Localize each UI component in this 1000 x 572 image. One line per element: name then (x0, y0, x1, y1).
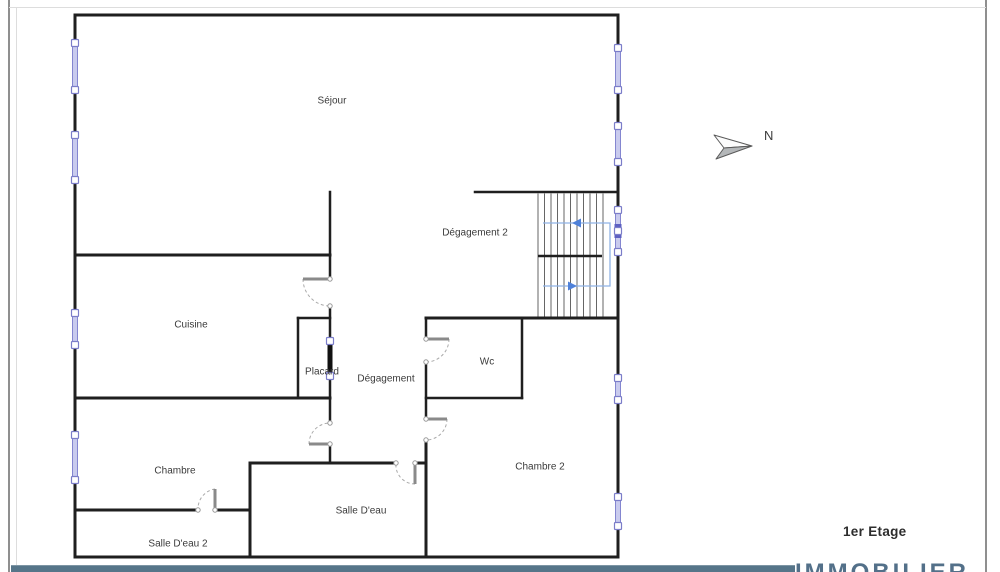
room-label-d-gagement: Dégagement (357, 374, 414, 385)
floor-title: 1er Etage (843, 524, 963, 539)
north-arrow-lower (716, 146, 752, 159)
stair-direction-path (543, 223, 610, 286)
door-hinge-dot (328, 442, 332, 446)
window-glass (73, 435, 78, 480)
door-swing-arc (309, 423, 330, 444)
room-label-wc: Wc (480, 357, 494, 368)
window-handle (615, 375, 622, 382)
window-glass (73, 43, 78, 90)
room-label-cuisine: Cuisine (174, 320, 208, 331)
room-label-s-jour: Séjour (318, 96, 348, 107)
window-handle (615, 494, 622, 501)
door-hinge-dot (424, 417, 428, 421)
door-swing-arc (426, 339, 449, 362)
door-swing-arc (396, 463, 415, 484)
window-handle (615, 87, 622, 94)
room-label-d-gagement-2: Dégagement 2 (442, 228, 508, 239)
door-hinge-dot (424, 360, 428, 364)
floorplan-page: SéjourDégagement 2CuisinePlacardDégageme… (0, 0, 1000, 572)
room-label-salle-d-eau-2: Salle D'eau 2 (148, 539, 208, 550)
watermark-text: IMMOBILIER (795, 561, 985, 572)
footer-bar (11, 565, 795, 572)
window-handle (615, 159, 622, 166)
window-glass (73, 313, 78, 345)
door-hinge-dot (413, 461, 417, 465)
window-handle (615, 45, 622, 52)
door-hinge-dot (328, 304, 332, 308)
door-hinge-dot (213, 508, 217, 512)
window-handle (72, 87, 79, 94)
window-handle (72, 477, 79, 484)
stair-direction-arrow (568, 282, 577, 291)
window-handle (72, 132, 79, 139)
stair-direction-arrow (572, 219, 581, 228)
door-hinge-dot (196, 508, 200, 512)
window-glass (616, 497, 621, 526)
door-swing-arc (426, 419, 447, 440)
watermark: IMMOBILIER (795, 559, 985, 572)
window-handle (615, 249, 622, 256)
window-handle (72, 342, 79, 349)
door-swing-arc (303, 279, 330, 306)
window-handle (72, 310, 79, 317)
compass-north-label: N (764, 128, 773, 143)
door-hinge-dot (328, 421, 332, 425)
window-handle (615, 228, 622, 235)
window-handle (615, 397, 622, 404)
window-glass (73, 135, 78, 180)
window-handle (615, 523, 622, 530)
door-swing-arc (198, 489, 215, 510)
door-hinge-dot (394, 461, 398, 465)
room-label-placard: Placard (305, 367, 339, 378)
room-label-salle-d-eau: Salle D'eau (336, 506, 387, 517)
floor-plan-canvas: SéjourDégagement 2CuisinePlacardDégageme… (0, 0, 1000, 572)
window-glass (616, 126, 621, 162)
door-hinge-dot (424, 337, 428, 341)
room-label-chambre: Chambre (154, 466, 196, 477)
window-handle (72, 40, 79, 47)
placard-door-handle (327, 338, 334, 345)
room-label-chambre-2: Chambre 2 (515, 462, 565, 473)
window-handle (615, 207, 622, 214)
door-hinge-dot (328, 277, 332, 281)
door-hinge-dot (424, 438, 428, 442)
window-handle (615, 123, 622, 130)
window-glass (616, 48, 621, 90)
window-handle (72, 432, 79, 439)
window-handle (72, 177, 79, 184)
